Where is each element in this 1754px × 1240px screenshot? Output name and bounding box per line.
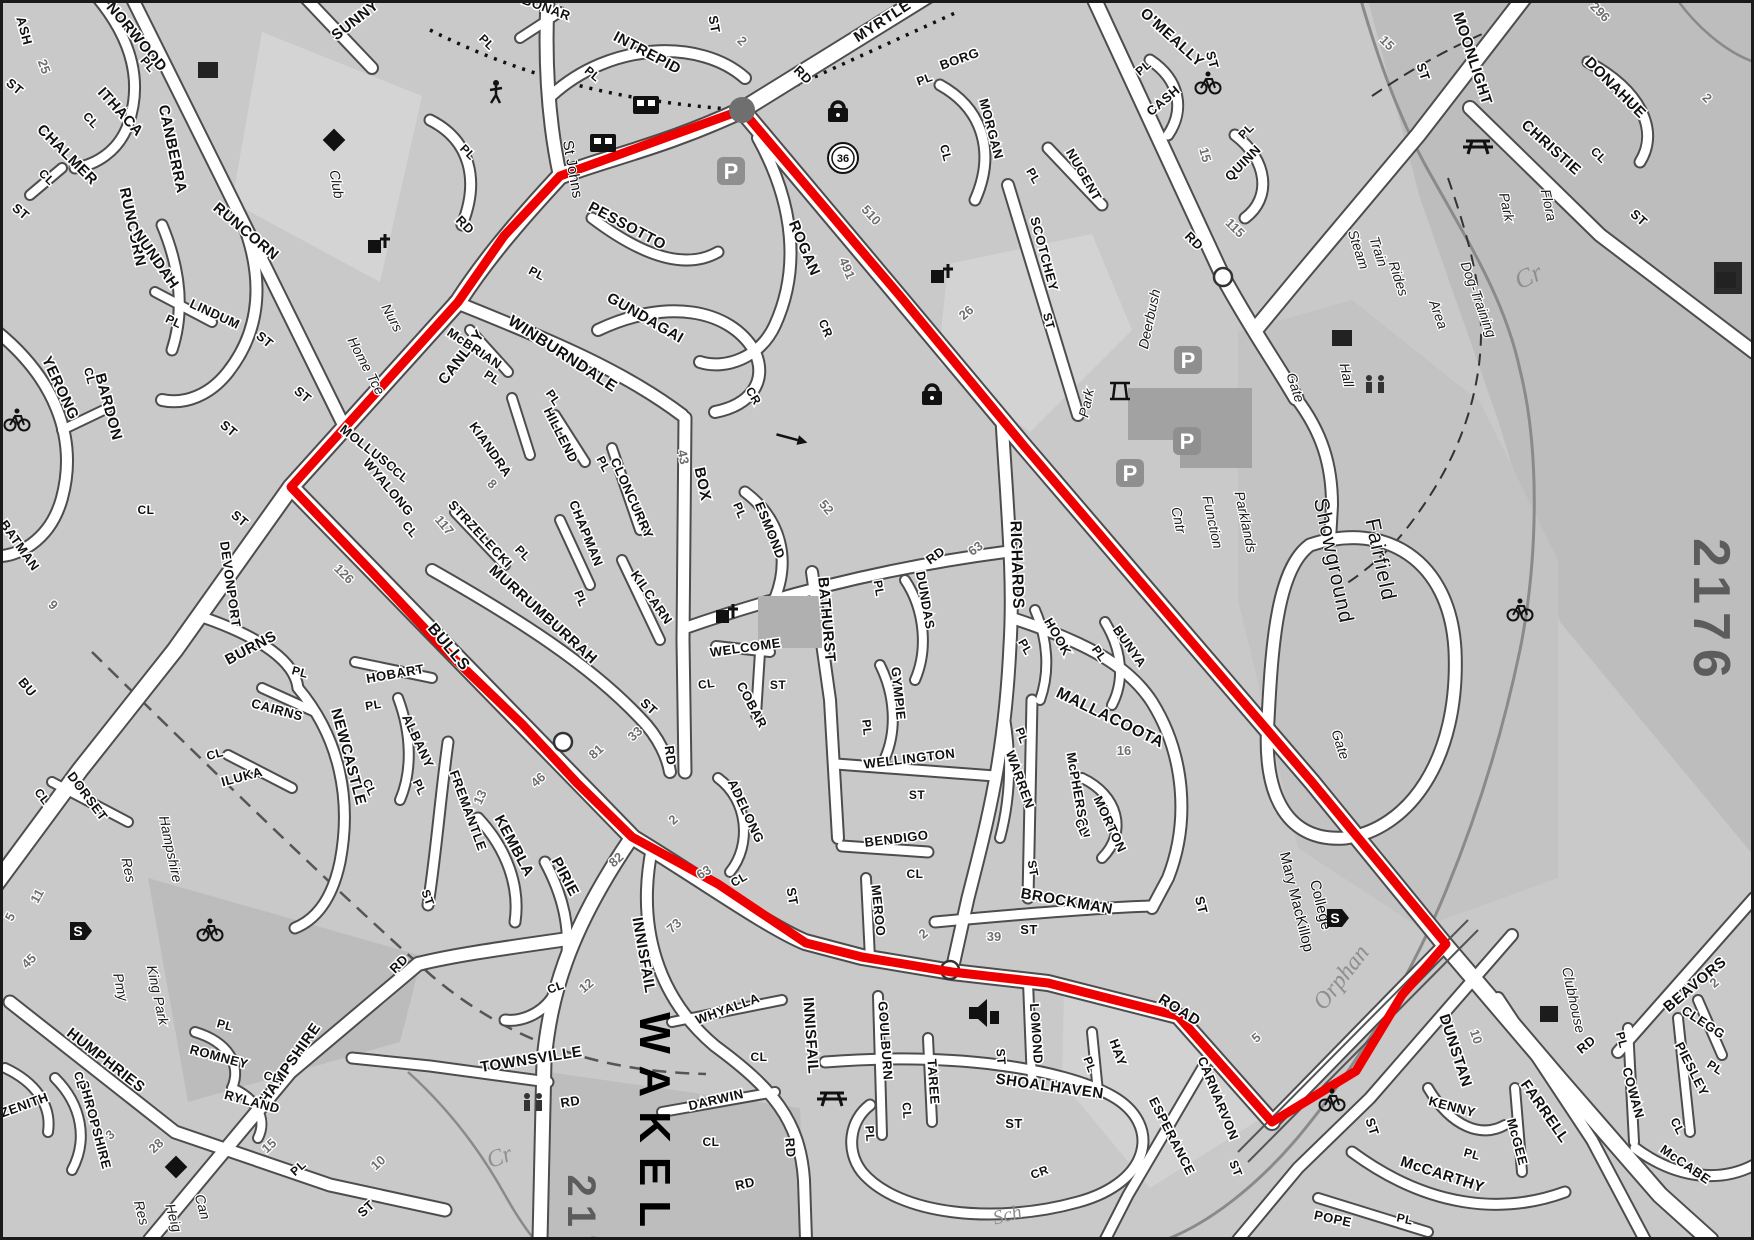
person-body	[524, 1100, 530, 1111]
parking-letter: P	[1181, 348, 1196, 373]
map-label: CL	[907, 867, 924, 881]
p-icon: P	[1174, 346, 1202, 374]
street-map: ASH25STNORWOODPLITHACACLCHALMERCLSTCANBE…	[0, 0, 1754, 1240]
bike-rider	[1330, 1089, 1335, 1094]
bus36-icon: 36	[828, 143, 858, 173]
map-canvas[interactable]: ASH25STNORWOODPLITHACACLCHALMERCLSTCANBE…	[0, 0, 1754, 1240]
parking-letter: P	[1123, 461, 1138, 486]
map-label: WAKELEY	[630, 1012, 679, 1240]
person-body	[536, 1100, 542, 1111]
map-label: 39	[987, 929, 1001, 944]
map-label: PL	[364, 697, 383, 714]
bike-rider	[1518, 599, 1523, 604]
map-label: CL	[697, 676, 716, 692]
person-body	[1366, 382, 1372, 393]
bus-window	[605, 138, 612, 144]
map-label: 43	[675, 448, 693, 465]
building	[1540, 1006, 1558, 1022]
map-label: RICHARDS	[1006, 520, 1026, 609]
map-label: CL	[751, 1050, 768, 1064]
map-label: ST	[993, 1048, 1008, 1065]
speaker-box	[990, 1011, 999, 1024]
bus-body	[633, 96, 659, 114]
map-label: ST	[770, 678, 787, 692]
building-footprint	[1332, 330, 1352, 346]
person-head	[536, 1093, 542, 1099]
p-icon: P	[1173, 427, 1201, 455]
church-building	[368, 240, 381, 253]
map-label: PL	[859, 719, 875, 737]
map-label: PL	[862, 1125, 877, 1142]
person-body	[1378, 382, 1384, 393]
bike-rider	[1206, 72, 1211, 77]
walker-head	[493, 80, 499, 86]
person-head	[1378, 375, 1384, 381]
roundabout-icon	[1214, 268, 1232, 286]
person-head	[1366, 375, 1372, 381]
map-label: ST	[1020, 922, 1038, 937]
route-node-icon	[729, 97, 755, 123]
lock-hole	[836, 113, 840, 117]
parking-letter: P	[724, 159, 739, 184]
map-label: RD	[559, 1093, 581, 1111]
map-label: ST	[1025, 859, 1042, 878]
bus-window	[637, 100, 644, 106]
map-label: 2176	[1682, 538, 1740, 686]
lock-hole	[930, 396, 934, 400]
bus-icon	[590, 134, 616, 152]
map-label: TAREE	[924, 1058, 942, 1105]
map-label: RD	[662, 745, 680, 767]
map-label: CL	[138, 503, 155, 517]
map-label: ST	[1005, 1116, 1023, 1131]
bike-rider	[208, 919, 213, 924]
bus-window	[648, 100, 655, 106]
p-icon: P	[717, 157, 745, 185]
roundabout-icon	[554, 733, 572, 751]
bldg-icon	[198, 62, 218, 78]
parking-letter: P	[1180, 429, 1195, 454]
building-footprint	[1716, 272, 1736, 288]
church-building	[716, 610, 729, 623]
map-label: ST	[706, 14, 724, 34]
map-label: RD	[782, 1137, 798, 1158]
bike-rider	[15, 409, 20, 414]
map-label: 16	[1117, 743, 1131, 758]
map-label: CL	[703, 1135, 720, 1149]
map-label: ST	[909, 788, 926, 802]
map-label: PL	[871, 579, 888, 598]
church-building	[931, 270, 944, 283]
person-head	[524, 1093, 530, 1099]
map-label: CL	[899, 1102, 914, 1120]
bldg-icon	[1332, 330, 1352, 346]
bus-body	[590, 134, 616, 152]
bus-window	[594, 138, 601, 144]
bus-icon	[633, 96, 659, 114]
building-footprint	[198, 62, 218, 78]
node-icon	[729, 97, 755, 123]
route-number: 36	[837, 153, 849, 165]
school-letter: S	[73, 923, 82, 939]
school-letter: S	[1330, 910, 1339, 926]
map-label: 2176	[559, 1175, 603, 1240]
road	[683, 418, 685, 772]
p-icon: P	[1116, 459, 1144, 487]
map-label: ST	[784, 886, 802, 906]
bldg-icon	[1716, 272, 1736, 288]
